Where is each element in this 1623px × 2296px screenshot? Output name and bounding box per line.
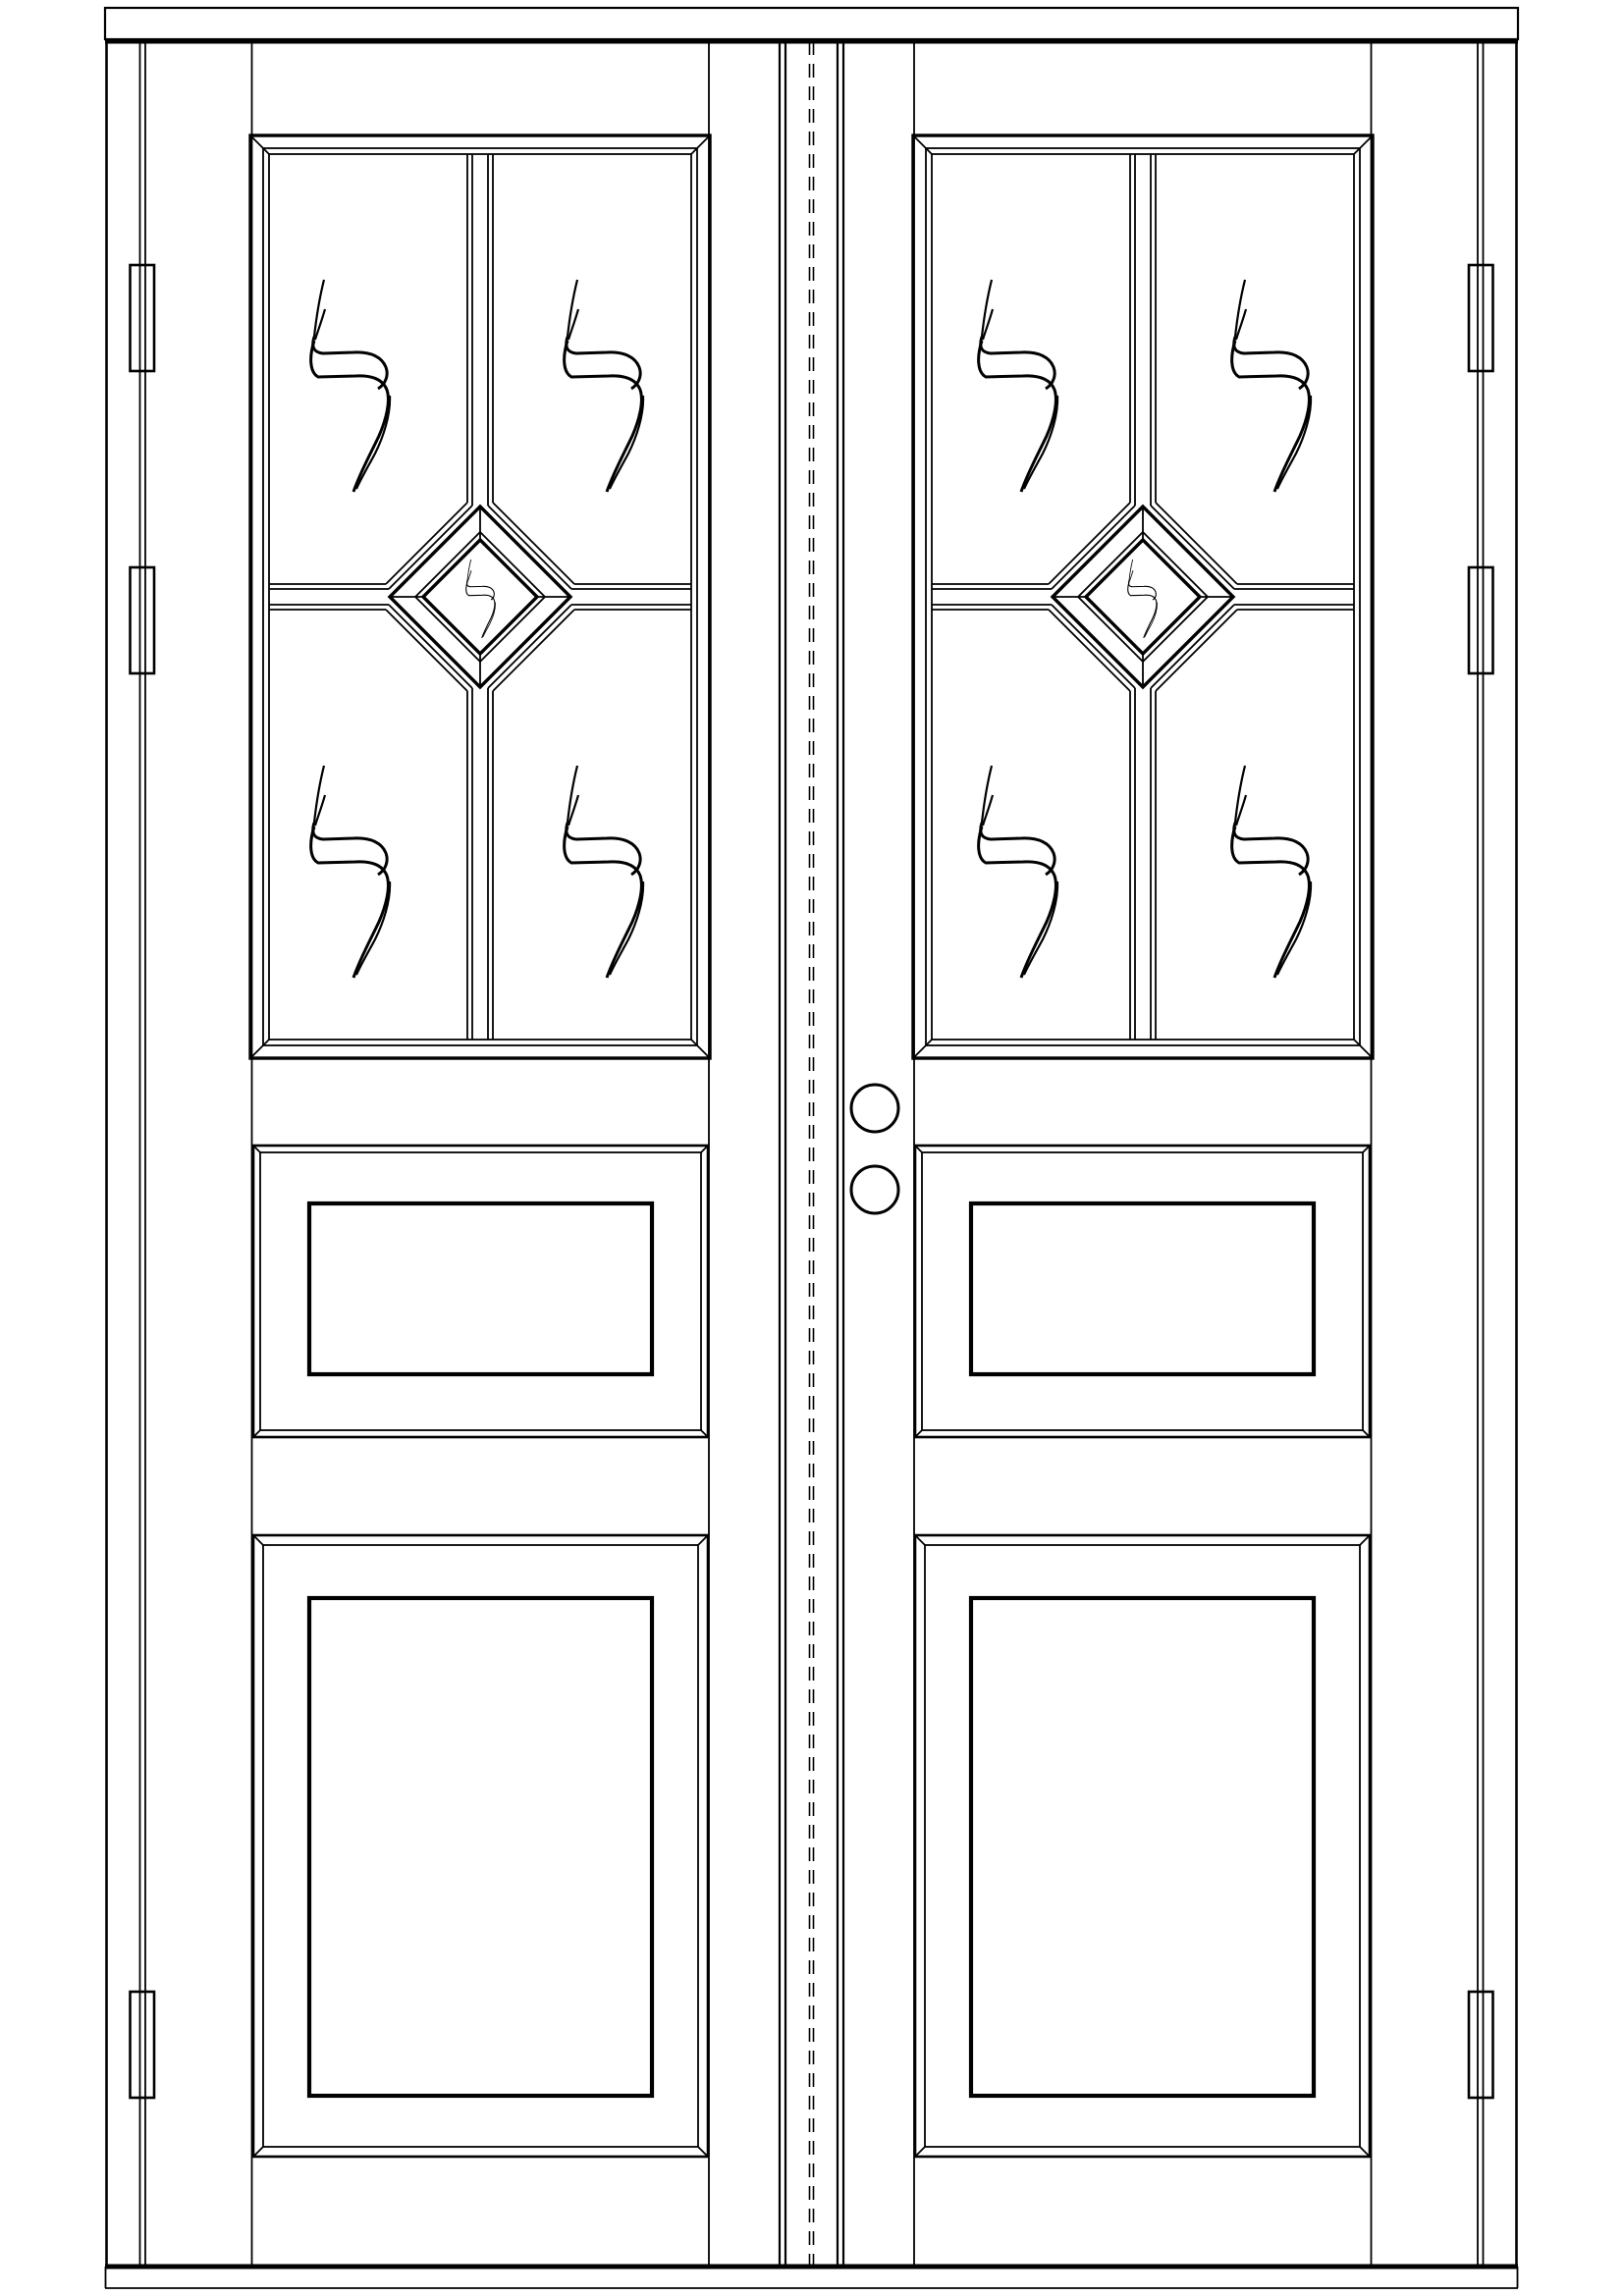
hinges [131,265,155,2098]
lower-panel [915,1535,1370,2157]
door-knob [851,1085,898,1132]
moulding-miter [250,135,269,154]
diamond-ornament [386,503,574,691]
pane-chamfer-bevel [1156,503,1237,584]
diamond-ornament [1049,503,1237,691]
glazed-upper-section [250,135,710,1058]
panel-raised-field [971,1203,1314,1374]
moulding-miter [1354,135,1373,154]
pane-chamfer-bevel [1151,506,1234,589]
pane-chamfer-bevel [493,503,574,584]
door-knob [851,1166,898,1213]
glass-frame-bevel [263,148,697,1045]
hinge-plate [1469,1992,1493,2098]
lower-panel [253,1535,708,2157]
glass-frame-bevel [269,154,691,1040]
left-door-assembly [107,39,786,2267]
hinge-plate [131,265,155,371]
panel-miter [253,2147,263,2157]
diamond-ring [1086,540,1200,654]
panel-moulding-outer [915,1535,1370,2157]
drawing-sheet [0,0,1623,2296]
glass-reflection-mark [1232,280,1311,492]
panel-miter [1360,2147,1370,2157]
middle-panel [253,1146,708,1437]
moulding-miter [691,135,710,154]
glass-reflection-mark [311,766,390,978]
glass-reflection-mark [979,766,1057,978]
moulding-miter [1354,1040,1373,1058]
panel-moulding-outer [253,1535,708,2157]
glass-frame-moulding [250,135,710,1058]
panel-raised-field [309,1203,652,1374]
pane-chamfer-bevel [1052,506,1135,589]
hinge-plate [131,567,155,673]
moulding-miter [913,1040,932,1058]
pane-chamfer-bevel [493,610,574,691]
glass-reflection-mark [565,280,643,492]
glass-reflection-marks [311,280,1311,978]
pane-chamfer-bevel [1151,605,1234,688]
panel-miter [253,1535,263,1545]
hinge-plate [1469,567,1493,673]
pane-chamfer-bevel [1049,503,1130,584]
moulding-miter [913,135,932,154]
panel-moulding-outer [253,1146,708,1437]
pane-chamfer-bevel [488,605,571,688]
door-hardware [851,1085,898,1213]
panel-miter [698,1535,708,1545]
glass-frame-bevel [932,154,1354,1040]
pane-chamfer-bevel [386,503,467,584]
hinges [1469,265,1493,2098]
panel-miter [698,2147,708,2157]
frame-head-band [105,8,1518,39]
pane-chamfer-bevel [1156,610,1237,691]
pane-chamfer-bevel [1052,605,1135,688]
panel-moulding-outer [915,1146,1370,1437]
double-door-elevation-drawing [0,0,1623,2296]
hinge-plate [1469,265,1493,371]
panel-miter [915,2147,925,2157]
panel-miter [1360,1535,1370,1545]
moulding-miter [691,1040,710,1058]
glass-reflection-mark [311,280,390,492]
pane-chamfer-bevel [488,506,571,589]
glass-reflection-mark [565,766,643,978]
frame-horizontals [105,8,1518,2288]
diamond-glass-reflection-mark [1128,560,1158,638]
hinge-plate [131,1992,155,2098]
panel-miter [915,1535,925,1545]
panel-raised-field [309,1598,652,2096]
panel-moulding-bevel [922,1152,1363,1430]
glass-reflection-mark [1232,766,1311,978]
panel-moulding-bevel [260,1152,701,1430]
panel-raised-field [971,1598,1314,2096]
middle-panel [915,1146,1370,1437]
panel-moulding-bevel [925,1545,1360,2147]
diamond-ring [423,540,537,654]
diamond-glass-reflection-mark [466,560,496,638]
right-door-assembly [838,39,1517,2267]
pane-chamfer-bevel [389,605,472,688]
pane-chamfer-bevel [389,506,472,589]
pane-chamfer-bevel [386,610,467,691]
pane-chamfer-bevel [1049,610,1130,691]
panel-moulding-bevel [263,1545,698,2147]
glass-reflection-mark [979,280,1057,492]
moulding-miter [250,1040,269,1058]
